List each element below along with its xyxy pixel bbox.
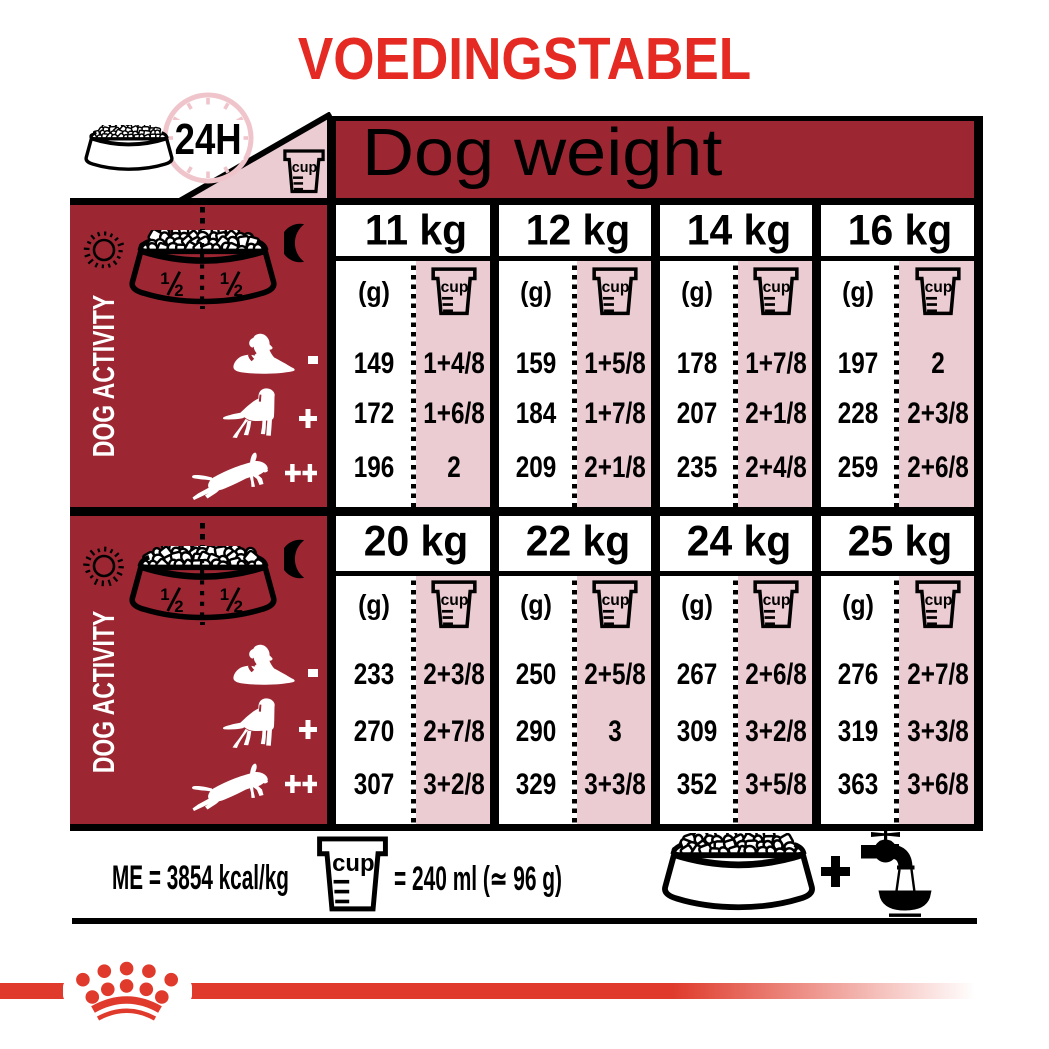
svg-text:2: 2 [174, 281, 183, 300]
svg-text:1: 1 [160, 585, 169, 604]
svg-text:cup: cup [602, 592, 630, 609]
svg-text:2: 2 [234, 597, 243, 616]
svg-text:2: 2 [234, 281, 243, 300]
svg-text:1: 1 [220, 269, 229, 288]
svg-text:cup: cup [441, 592, 469, 609]
svg-text:cup: cup [292, 160, 318, 176]
svg-text:cup: cup [763, 279, 791, 296]
svg-text:cup: cup [925, 592, 953, 609]
svg-text:cup: cup [441, 279, 469, 296]
svg-text:1: 1 [160, 269, 169, 288]
svg-text:1: 1 [220, 585, 229, 604]
svg-text:cup: cup [763, 592, 791, 609]
svg-text:cup: cup [925, 279, 953, 296]
svg-text:cup: cup [602, 279, 630, 296]
svg-text:cup: cup [332, 850, 374, 877]
svg-text:2: 2 [174, 597, 183, 616]
